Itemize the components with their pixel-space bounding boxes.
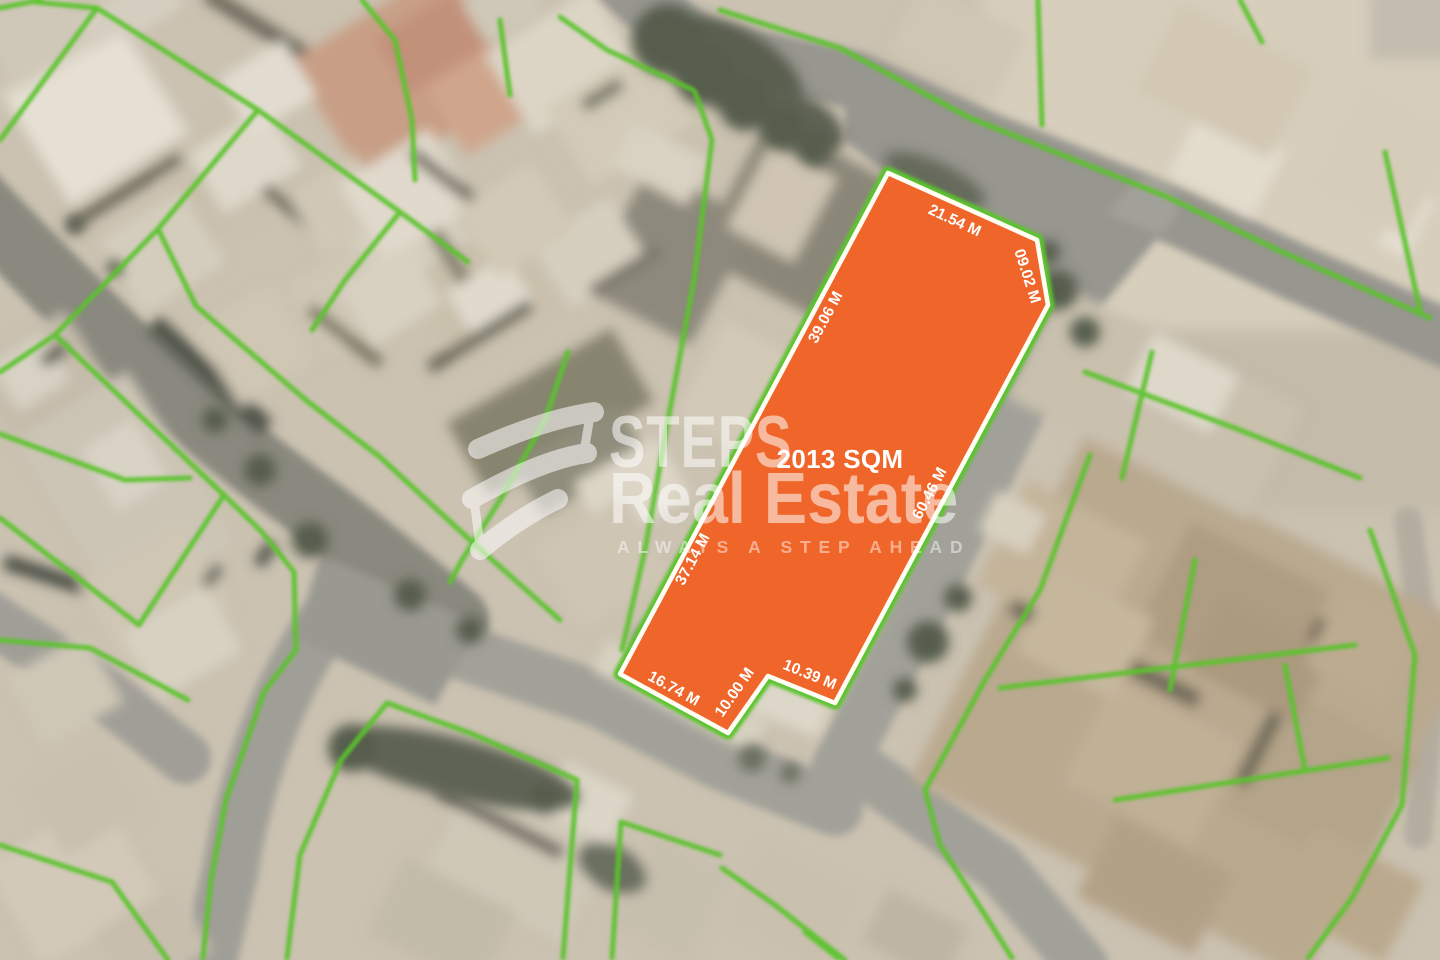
svg-text:ALWAYS A STEP AHEAD: ALWAYS A STEP AHEAD <box>617 537 970 557</box>
svg-text:Real Estate: Real Estate <box>609 458 958 539</box>
